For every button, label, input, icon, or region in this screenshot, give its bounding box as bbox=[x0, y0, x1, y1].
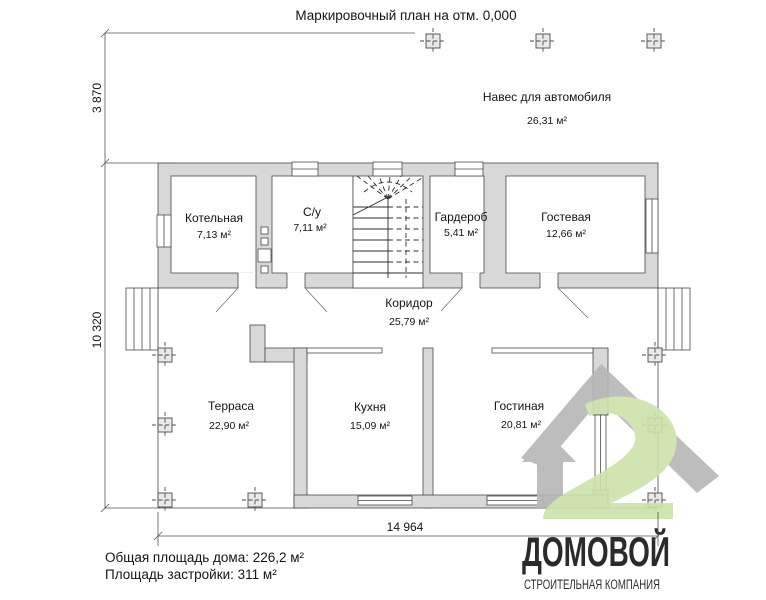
house-top-band bbox=[158, 163, 658, 288]
room-name: С/у bbox=[303, 205, 321, 219]
room-area: 7,11 м² bbox=[293, 222, 327, 234]
entry-steps-right bbox=[658, 288, 690, 350]
column-marker-icon bbox=[152, 487, 178, 513]
room-name: Гостиная bbox=[494, 399, 544, 413]
room-name: Гардероб bbox=[435, 210, 488, 224]
summary-total-area: Общая площадь дома: 226,2 м² bbox=[105, 550, 305, 565]
logo-subtitle: СТРОИТЕЛЬНАЯ КОМПАНИЯ bbox=[524, 577, 660, 592]
room-area: 12,66 м² bbox=[546, 228, 586, 240]
summary-footprint: Площадь застройки: 311 м² bbox=[105, 567, 277, 582]
logo-wordmark: ДОМОВОЙ bbox=[522, 527, 670, 575]
room-area: 20,81 м² bbox=[501, 419, 541, 431]
room-area: 7,13 м² bbox=[197, 229, 232, 241]
carport-name: Навес для автомобиля bbox=[483, 90, 611, 104]
carport-area: 26,31 м² bbox=[527, 115, 567, 127]
room-label-terrasa: Терраса 22,90 м² bbox=[208, 399, 254, 432]
room-name: Котельная bbox=[185, 211, 243, 225]
floor-plan-drawing: ДОМОВОЙ СТРОИТЕЛЬНАЯ КОМПАНИЯ 3 870 10 3… bbox=[0, 0, 766, 600]
dim-height-left: 10 320 bbox=[90, 311, 104, 348]
room-name: Терраса bbox=[208, 399, 254, 413]
room-area: 25,79 м² bbox=[389, 316, 429, 328]
room-name: Гостевая bbox=[541, 210, 591, 224]
column-marker-icon bbox=[530, 28, 556, 54]
room-name: Коридор bbox=[385, 296, 433, 310]
page-title: Маркировочный план на отм. 0,000 bbox=[295, 8, 516, 23]
door-swing bbox=[558, 288, 588, 318]
room-gostevaya bbox=[506, 176, 645, 273]
column-marker-icon bbox=[152, 412, 178, 438]
room-area: 5,41 м² bbox=[444, 227, 479, 239]
carport-label: Навес для автомобиля 26,31 м² bbox=[483, 90, 611, 127]
room-area: 15,09 м² bbox=[350, 420, 390, 432]
column-marker-icon bbox=[420, 28, 446, 54]
column-marker-icon bbox=[641, 28, 667, 54]
room-label-kuhnya: Кухня 15,09 м² bbox=[350, 400, 390, 432]
dim-width-bottom: 14 964 bbox=[387, 520, 424, 534]
entry-steps-left bbox=[126, 288, 158, 350]
door-swing bbox=[216, 288, 238, 312]
door-swing bbox=[441, 288, 462, 311]
room-name: Кухня bbox=[354, 400, 386, 414]
floor-plan-page: ДОМОВОЙ СТРОИТЕЛЬНАЯ КОМПАНИЯ 3 870 10 3… bbox=[0, 0, 766, 600]
company-logo: ДОМОВОЙ СТРОИТЕЛЬНАЯ КОМПАНИЯ bbox=[521, 364, 719, 592]
dim-height-top: 3 870 bbox=[90, 83, 104, 113]
room-garderob bbox=[430, 176, 484, 273]
room-label-gostinaya: Гостиная 20,81 м² bbox=[494, 399, 544, 431]
column-marker-icon bbox=[242, 487, 268, 513]
door-swing bbox=[305, 288, 327, 312]
room-label-koridor: Коридор 25,79 м² bbox=[385, 296, 433, 328]
room-area: 22,90 м² bbox=[209, 420, 249, 432]
summary-block: Общая площадь дома: 226,2 м² Площадь зас… bbox=[105, 550, 305, 582]
